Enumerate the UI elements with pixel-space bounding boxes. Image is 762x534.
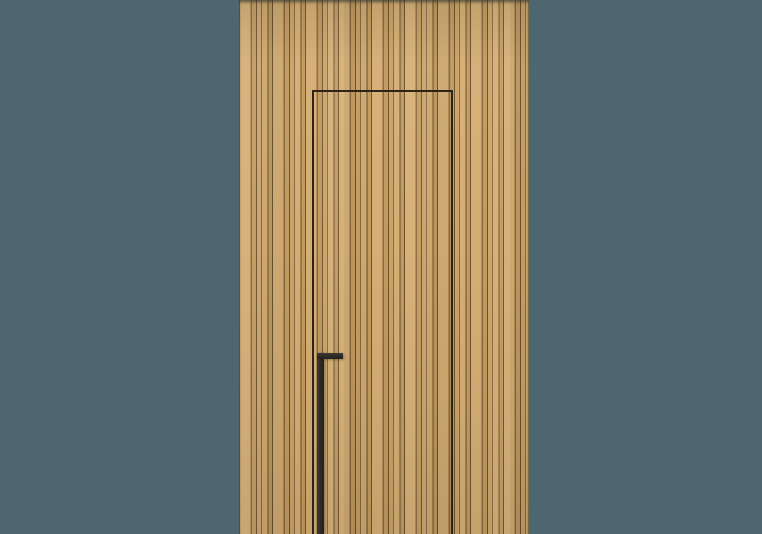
concealed-door-outline (312, 90, 453, 534)
door-handle-vertical-bar (317, 353, 324, 534)
wood-slat-wall (239, 0, 529, 534)
product-photo (0, 0, 762, 534)
door-handle-top-arm (317, 353, 343, 359)
